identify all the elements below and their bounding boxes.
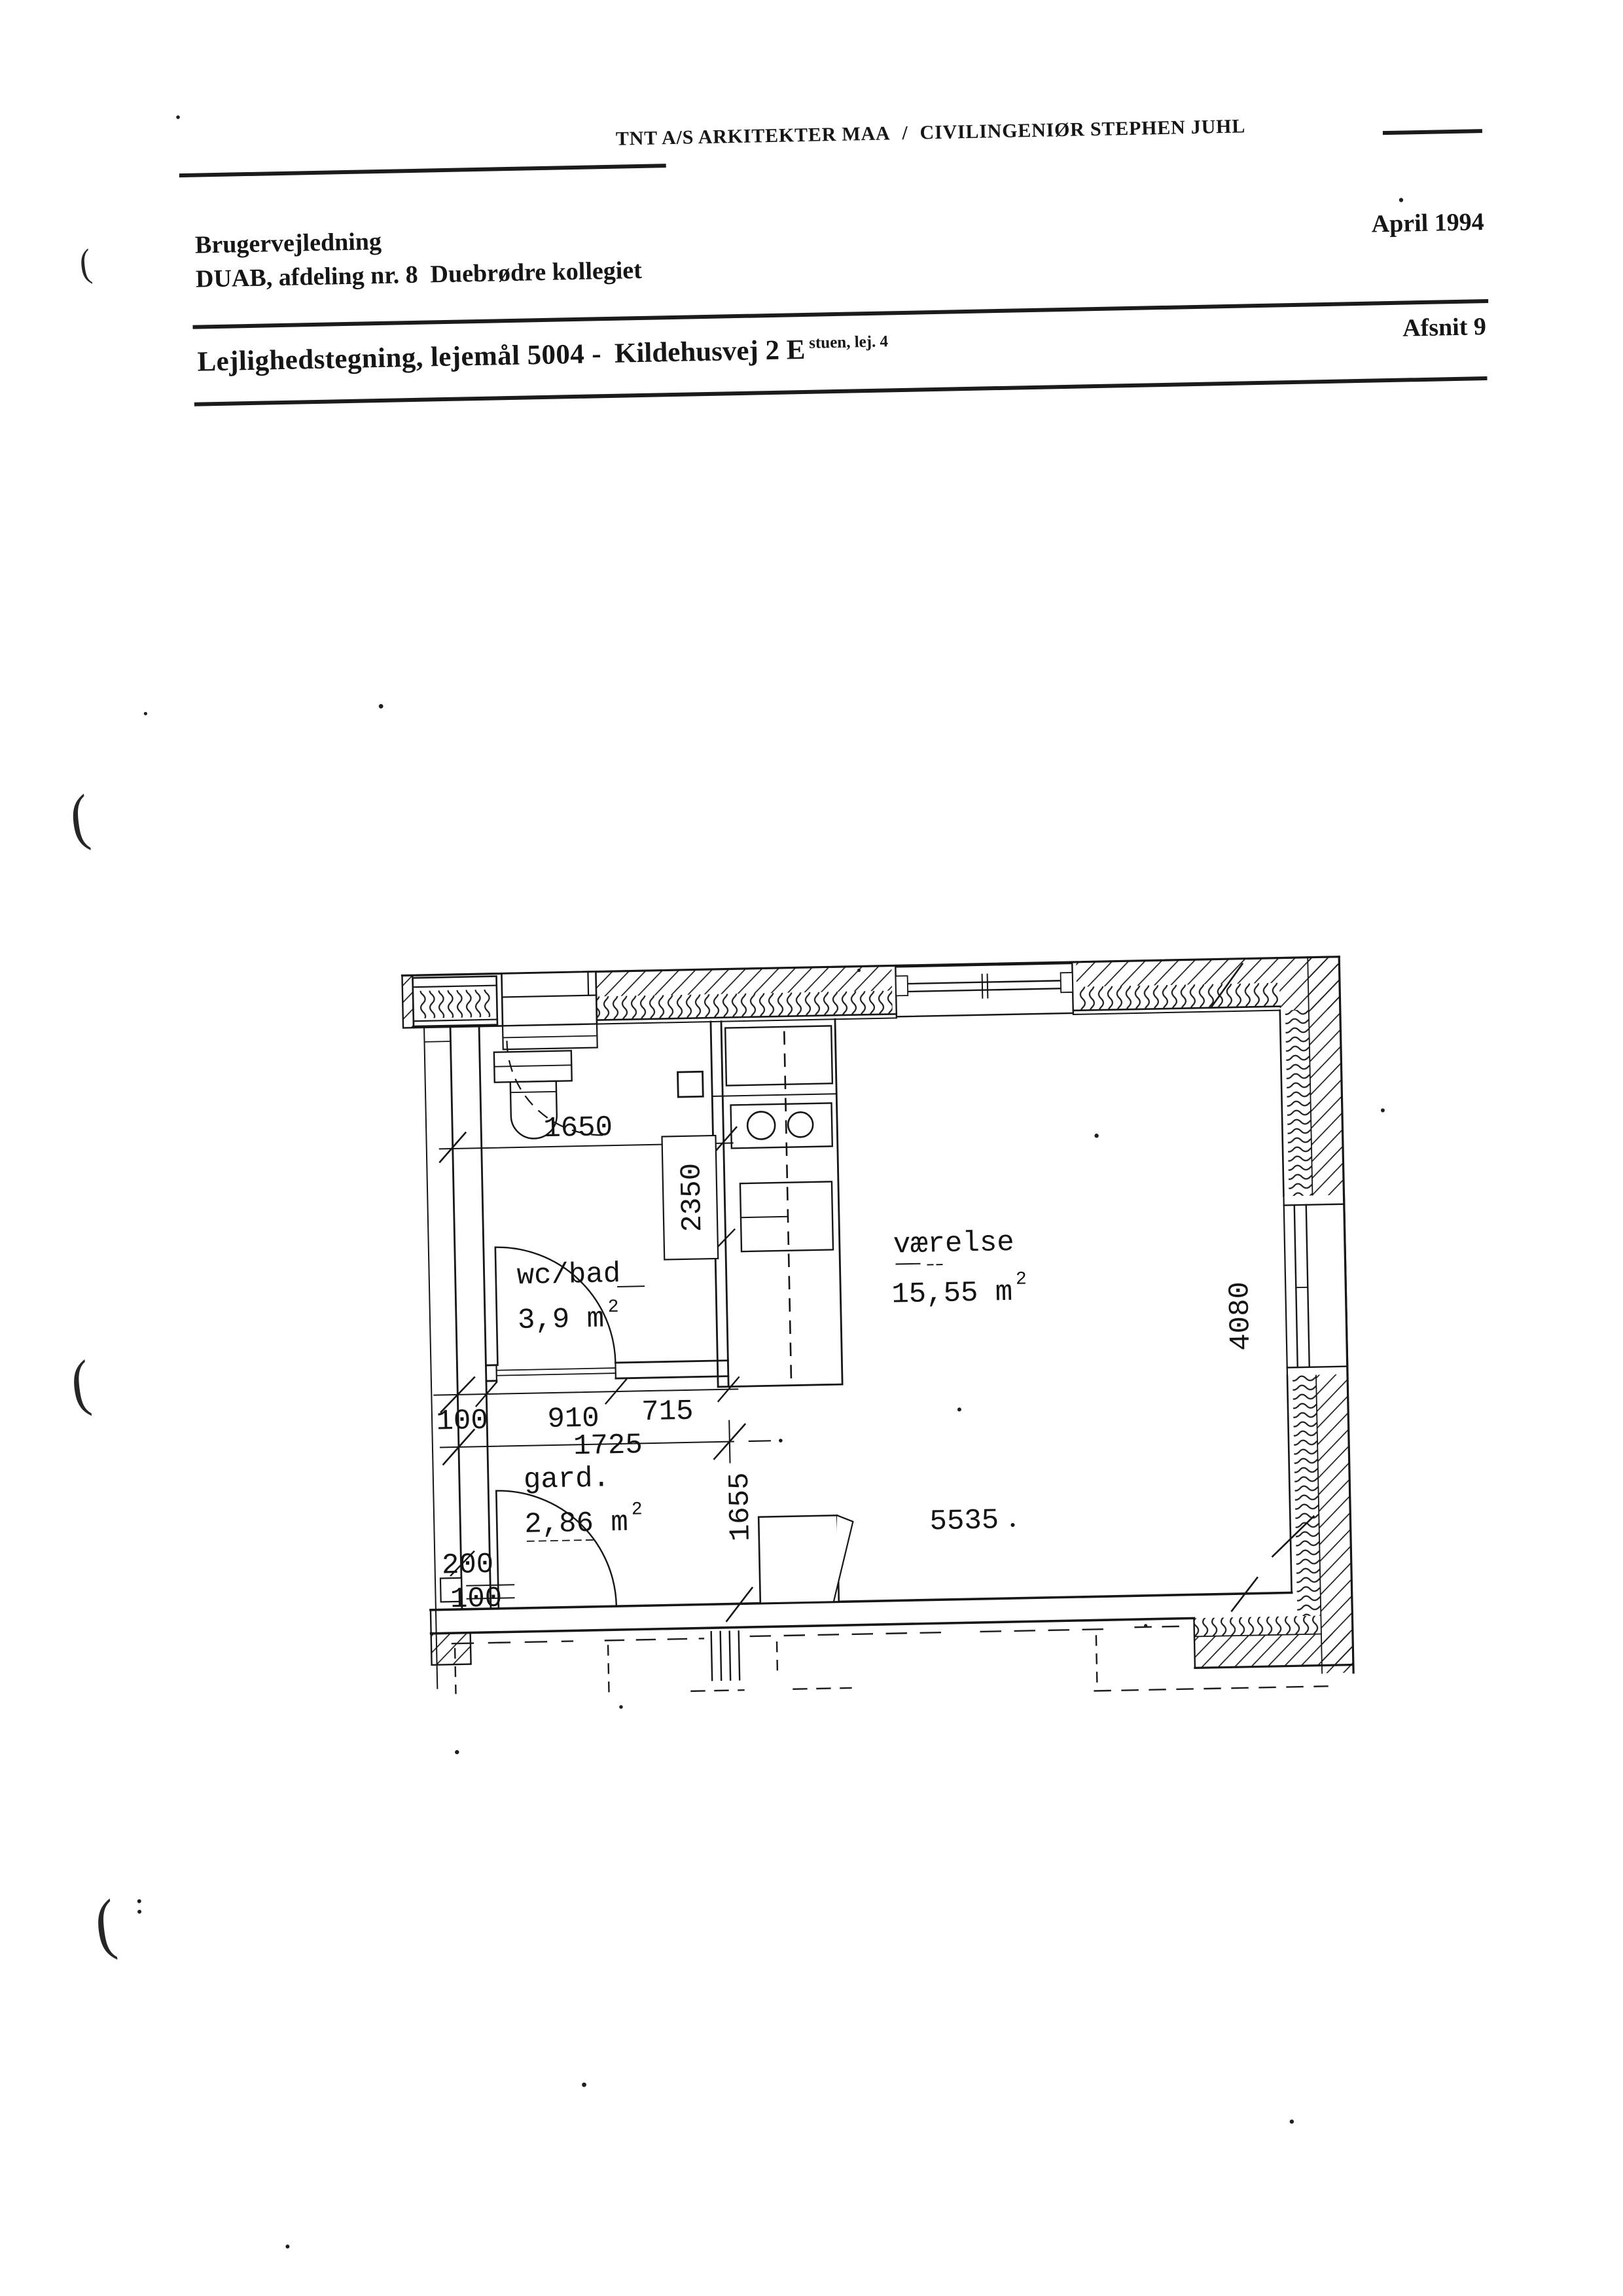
dim-1650-label: 1650 <box>543 1111 613 1145</box>
vaerelse-area-sup: 2 <box>1016 1269 1027 1289</box>
scan-specks <box>101 91 1444 2251</box>
dim-1655-label: 1655 <box>724 1472 758 1542</box>
dim-100a-label: 100 <box>436 1405 488 1439</box>
scanned-page: TNT A/S ARKITEKTER MAA/CIVILINGENIØR STE… <box>0 0 1623 2296</box>
kitchen <box>711 1019 842 1387</box>
dim-5535: 5535 <box>929 1504 1015 1539</box>
vaerelse-area: 15,55 m <box>891 1276 1013 1312</box>
top-wall <box>402 957 1340 1052</box>
bottom-wall <box>430 1576 1353 1704</box>
stove <box>731 1103 832 1148</box>
floor-plan: 1650 2350 100 910 715 1725 20 <box>0 0 1623 2296</box>
gard-area-sup: 2 <box>632 1499 643 1520</box>
entrance-threshold <box>711 1631 740 1680</box>
room-label-wc-bad: wc/bad 3,9 m 2 <box>516 1257 645 1337</box>
wc-bad-area: 3,9 m <box>518 1302 605 1337</box>
bathroom-window <box>413 977 497 1027</box>
dim-2350-label: 2350 <box>675 1162 709 1232</box>
right-wall <box>1260 957 1353 1674</box>
room-window-top <box>895 963 1073 1016</box>
gard-name: gard. <box>523 1462 610 1497</box>
bathroom-bottom-wall <box>486 1361 728 1381</box>
room-label-vaerelse: værelse 15,55 m 2 <box>890 1226 1027 1311</box>
dim-5535-label: 5535 <box>929 1504 999 1538</box>
desk <box>758 1515 855 1604</box>
wc-bad-area-sup: 2 <box>607 1297 618 1318</box>
room-label-gard: gard. 2,86 m 2 <box>523 1462 643 1541</box>
wc-bad-name: wc/bad <box>516 1258 620 1293</box>
vaerelse-name: værelse <box>893 1227 1014 1262</box>
dim-200-label: 200 <box>441 1549 493 1583</box>
gard-area: 2,86 m <box>524 1507 628 1541</box>
floor-drain <box>678 1071 704 1097</box>
entry-niche <box>501 972 597 1050</box>
dim-row-910-715: 100 910 715 <box>434 1372 740 1438</box>
kitchen-cabinet <box>725 1026 832 1085</box>
dim-1725-label: 1725 <box>573 1429 643 1463</box>
dim-100b-label: 100 <box>450 1583 503 1617</box>
dim-1725: 1725 <box>440 1420 783 1468</box>
room-window-right <box>1284 1195 1347 1376</box>
scan-content: TNT A/S ARKITEKTER MAA/CIVILINGENIØR STE… <box>0 0 1623 2296</box>
dim-4080-label: 4080 <box>1224 1282 1258 1352</box>
dim-715-label: 715 <box>641 1395 694 1429</box>
